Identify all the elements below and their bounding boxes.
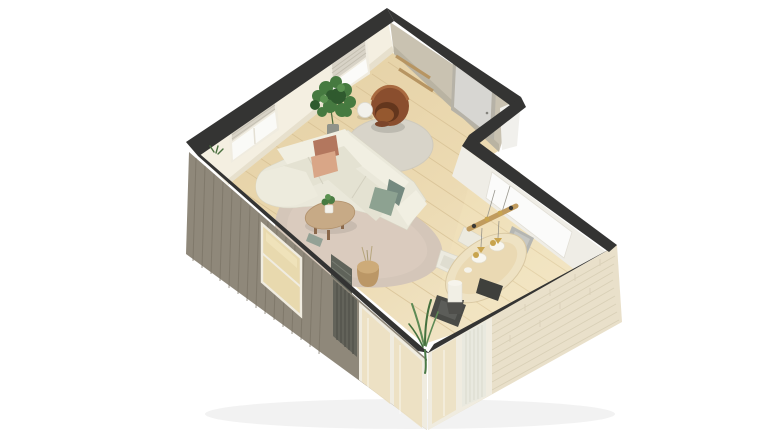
floorplan-3d-render [0, 0, 768, 432]
floorplan-canvas [0, 0, 768, 432]
side-table [357, 103, 373, 121]
floor-lamp-on-stool [446, 280, 464, 314]
swivel-armchair [371, 86, 409, 133]
